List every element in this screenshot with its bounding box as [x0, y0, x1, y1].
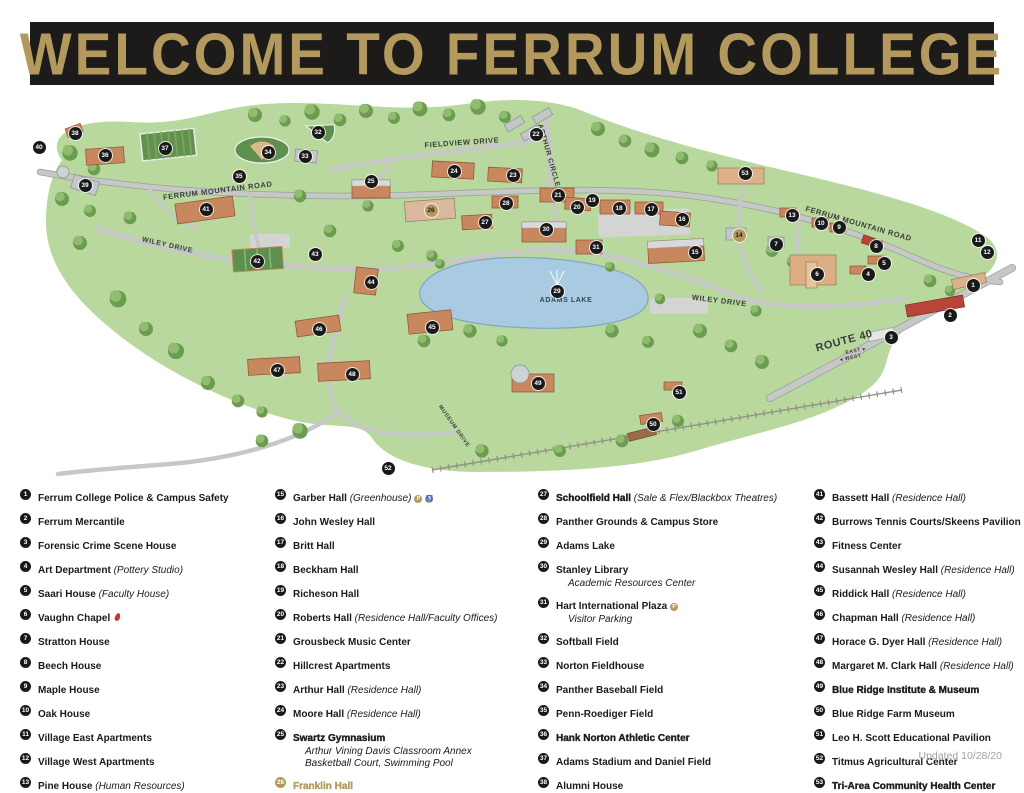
legend-name: Forensic Crime Scene House: [38, 541, 176, 552]
legend-detail: (Faculty House): [96, 589, 169, 600]
legend-detail: (Residence Hall): [889, 493, 966, 504]
legend-badge-48: 48: [814, 657, 825, 668]
legend-item-20: 20Roberts Hall (Residence Hall/Faculty O…: [275, 608, 537, 626]
legend-subline: Basketball Court, Swimming Pool: [293, 758, 472, 770]
legend-badge-9: 9: [20, 681, 31, 692]
legend-subline: Visitor Parking: [556, 614, 678, 626]
parking-icon: P: [670, 603, 678, 611]
legend-name: Art Department: [38, 565, 111, 576]
legend-detail: (Residence Hall): [938, 565, 1015, 576]
legend-item-32: 32Softball Field: [538, 632, 813, 650]
legend-name: Blue Ridge Farm Museum: [832, 709, 955, 720]
legend-name: Horace G. Dyer Hall: [832, 637, 925, 648]
legend-name: Beckham Hall: [293, 565, 359, 576]
legend-name: Maple House: [38, 685, 100, 696]
legend-name: Susannah Wesley Hall: [832, 565, 938, 576]
accessible-icon: ♿: [425, 495, 433, 503]
legend-name: Ferrum College Police & Campus Safety: [38, 493, 229, 504]
updated-date: Updated 10/28/20: [919, 750, 1003, 762]
legend-name: Bassett Hall: [832, 493, 889, 504]
parking-icon: P: [414, 495, 422, 503]
baseball-field: [235, 137, 289, 163]
legend-item-49: 49Blue Ridge Institute & Museum: [814, 680, 1024, 698]
legend-name: Hillcrest Apartments: [293, 661, 390, 672]
legend-column-4: 41Bassett Hall (Residence Hall)42Burrows…: [814, 488, 1024, 793]
legend-name: Chapman Hall: [832, 613, 899, 624]
legend-subline: Arthur Vining Davis Classroom Annex: [293, 746, 472, 758]
legend-badge-3: 3: [20, 537, 31, 548]
legend-item-19: 19Richeson Hall: [275, 584, 537, 602]
legend-item-33: 33Norton Fieldhouse: [538, 656, 813, 674]
legend-item-36: 36Hank Norton Athletic Center: [538, 728, 813, 746]
legend-item-4: 4Art Department (Pottery Studio): [20, 560, 270, 578]
legend-badge-47: 47: [814, 633, 825, 644]
legend-name: Arthur Hall: [293, 685, 345, 696]
legend-item-25: 25Swartz GymnasiumArthur Vining Davis Cl…: [275, 728, 537, 770]
legend-item-13: 13Pine House (Human Resources): [20, 776, 270, 793]
legend-badge-18: 18: [275, 561, 286, 572]
legend-name: Village East Apartments: [38, 733, 152, 744]
legend-item-3: 3Forensic Crime Scene House: [20, 536, 270, 554]
legend-badge-41: 41: [814, 489, 825, 500]
legend-name: Blue Ridge Institute & Museum: [832, 685, 979, 696]
legend-item-29: 29Adams Lake: [538, 536, 813, 554]
legend-badge-26: 26: [275, 777, 286, 788]
tennis-courts: [232, 247, 283, 272]
legend-badge-7: 7: [20, 633, 31, 644]
legend-badge-1: 1: [20, 489, 31, 500]
legend-name: Swartz Gymnasium: [293, 733, 385, 744]
legend-name: Hank Norton Athletic Center: [556, 733, 690, 744]
legend-badge-16: 16: [275, 513, 286, 524]
legend-badge-36: 36: [538, 729, 549, 740]
legend-subline: Academic Resources Center: [556, 578, 695, 590]
legend-name: Stanley Library: [556, 565, 628, 576]
legend-name: Leo H. Scott Educational Pavilion: [832, 733, 991, 744]
legend-item-30: 30Stanley LibraryAcademic Resources Cent…: [538, 560, 813, 590]
legend-item-1: 1Ferrum College Police & Campus Safety: [20, 488, 270, 506]
legend-badge-17: 17: [275, 537, 286, 548]
campus-map-page: { "banner": { "title": "WELCOME TO FERRU…: [0, 0, 1024, 793]
legend-item-48: 48Margaret M. Clark Hall (Residence Hall…: [814, 656, 1024, 674]
legend-item-8: 8Beech House: [20, 656, 270, 674]
legend-badge-52: 52: [814, 753, 825, 764]
legend-item-11: 11Village East Apartments: [20, 728, 270, 746]
legend-badge-42: 42: [814, 513, 825, 524]
legend-name: John Wesley Hall: [293, 517, 375, 528]
legend-item-5: 5Saari House (Faculty House): [20, 584, 270, 602]
legend-detail: (Sale & Flex/Blackbox Theatres): [631, 493, 777, 504]
legend-badge-50: 50: [814, 705, 825, 716]
legend-item-35: 35Penn-Roediger Field: [538, 704, 813, 722]
legend-name: Softball Field: [556, 637, 619, 648]
legend-badge-20: 20: [275, 609, 286, 620]
legend-badge-30: 30: [538, 561, 549, 572]
lake-label: ADAMS LAKE: [540, 297, 593, 304]
legend-name: Schoolfield Hall: [556, 493, 631, 504]
legend-detail: (Residence Hall): [925, 637, 1002, 648]
legend-badge-6: 6: [20, 609, 31, 620]
legend-badge-31: 31: [538, 597, 549, 608]
legend-badge-44: 44: [814, 561, 825, 572]
legend-detail: (Residence Hall): [937, 661, 1014, 672]
legend-badge-53: 53: [814, 777, 825, 788]
legend-name: Richeson Hall: [293, 589, 359, 600]
legend-item-50: 50Blue Ridge Farm Museum: [814, 704, 1024, 722]
legend-detail: (Residence Hall): [889, 589, 966, 600]
legend-item-7: 7Stratton House: [20, 632, 270, 650]
legend-badge-13: 13: [20, 777, 31, 788]
legend-badge-37: 37: [538, 753, 549, 764]
legend-item-16: 16John Wesley Hall: [275, 512, 537, 530]
legend-item-10: 10Oak House: [20, 704, 270, 722]
legend-badge-34: 34: [538, 681, 549, 692]
legend-badge-8: 8: [20, 657, 31, 668]
legend-name: Oak House: [38, 709, 90, 720]
legend-name: Moore Hall: [293, 709, 344, 720]
legend-name: Margaret M. Clark Hall: [832, 661, 937, 672]
legend-item-38: 38Alumni House: [538, 776, 813, 793]
legend-detail: (Residence Hall): [899, 613, 976, 624]
legend-item-24: 24Moore Hall (Residence Hall): [275, 704, 537, 722]
legend-badge-5: 5: [20, 585, 31, 596]
legend-badge-4: 4: [20, 561, 31, 572]
legend-name: Fitness Center: [832, 541, 901, 552]
legend-name: Adams Stadium and Daniel Field: [556, 757, 711, 768]
legend-item-47: 47Horace G. Dyer Hall (Residence Hall): [814, 632, 1024, 650]
legend-name: Penn-Roediger Field: [556, 709, 653, 720]
legend-badge-21: 21: [275, 633, 286, 644]
legend-detail: (Residence Hall): [345, 685, 422, 696]
legend-column-3: 27Schoolfield Hall (Sale & Flex/Blackbox…: [538, 488, 813, 793]
legend-badge-32: 32: [538, 633, 549, 644]
legend-badge-12: 12: [20, 753, 31, 764]
legend-name: Saari House: [38, 589, 96, 600]
legend-item-42: 42Burrows Tennis Courts/Skeens Pavilion: [814, 512, 1024, 530]
legend-badge-15: 15: [275, 489, 286, 500]
legend-detail: (Residence Hall/Faculty Offices): [352, 613, 498, 624]
legend-name: Panther Baseball Field: [556, 685, 663, 696]
legend-badge-45: 45: [814, 585, 825, 596]
legend-item-46: 46Chapman Hall (Residence Hall): [814, 608, 1024, 626]
legend-column-2: 15Garber Hall (Greenhouse)P♿16John Wesle…: [275, 488, 537, 793]
legend-badge-35: 35: [538, 705, 549, 716]
legend-detail: (Human Resources): [92, 781, 184, 792]
legend-item-9: 9Maple House: [20, 680, 270, 698]
legend-name: Stratton House: [38, 637, 110, 648]
legend-badge-43: 43: [814, 537, 825, 548]
legend-name: Garber Hall: [293, 493, 347, 504]
legend-name: Roberts Hall: [293, 613, 352, 624]
legend-item-23: 23Arthur Hall (Residence Hall): [275, 680, 537, 698]
legend-badge-28: 28: [538, 513, 549, 524]
legend-badge-51: 51: [814, 729, 825, 740]
legend-name: Riddick Hall: [832, 589, 889, 600]
legend-item-2: 2Ferrum Mercantile: [20, 512, 270, 530]
legend-name: Ferrum Mercantile: [38, 517, 125, 528]
legend-item-53: 53Tri-Area Community Health Center: [814, 776, 1024, 793]
legend-badge-2: 2: [20, 513, 31, 524]
legend-name: Tri-Area Community Health Center: [832, 781, 995, 792]
legend-item-44: 44Susannah Wesley Hall (Residence Hall): [814, 560, 1024, 578]
legend-badge-29: 29: [538, 537, 549, 548]
legend-name: Franklin Hall: [293, 781, 353, 792]
legend-badge-25: 25: [275, 729, 286, 740]
legend-badge-19: 19: [275, 585, 286, 596]
legend-item-28: 28Panther Grounds & Campus Store: [538, 512, 813, 530]
legend-name: Grousbeck Music Center: [293, 637, 411, 648]
legend-item-41: 41Bassett Hall (Residence Hall): [814, 488, 1024, 506]
legend-item-51: 51Leo H. Scott Educational Pavilion: [814, 728, 1024, 746]
legend-badge-24: 24: [275, 705, 286, 716]
legend-badge-49: 49: [814, 681, 825, 692]
legend-item-12: 12Village West Apartments: [20, 752, 270, 770]
legend-badge-33: 33: [538, 657, 549, 668]
chapel-mark-icon: [114, 613, 121, 622]
legend-detail: (Residence Hall): [344, 709, 421, 720]
legend-item-34: 34Panther Baseball Field: [538, 680, 813, 698]
legend-item-26: 26Franklin HallDining Hall/Panther Pizze…: [275, 776, 537, 793]
legend-name: Norton Fieldhouse: [556, 661, 644, 672]
legend-badge-10: 10: [20, 705, 31, 716]
legend-badge-22: 22: [275, 657, 286, 668]
legend-detail: (Greenhouse): [347, 493, 411, 504]
legend-item-21: 21Grousbeck Music Center: [275, 632, 537, 650]
legend-column-1: 1Ferrum College Police & Campus Safety2F…: [20, 488, 270, 793]
legend-badge-11: 11: [20, 729, 31, 740]
legend-badge-38: 38: [538, 777, 549, 788]
legend-item-6: 6Vaughn Chapel: [20, 608, 270, 626]
legend-item-22: 22Hillcrest Apartments: [275, 656, 537, 674]
legend-item-27: 27Schoolfield Hall (Sale & Flex/Blackbox…: [538, 488, 813, 506]
legend-item-17: 17Britt Hall: [275, 536, 537, 554]
football-field: [140, 128, 197, 160]
legend-badge-46: 46: [814, 609, 825, 620]
legend-item-31: 31Hart International PlazaPVisitor Parki…: [538, 596, 813, 626]
legend-item-37: 37Adams Stadium and Daniel Field: [538, 752, 813, 770]
legend-name: Alumni House: [556, 781, 623, 792]
legend-item-45: 45Riddick Hall (Residence Hall): [814, 584, 1024, 602]
legend-item-15: 15Garber Hall (Greenhouse)P♿: [275, 488, 537, 506]
legend-name: Britt Hall: [293, 541, 335, 552]
legend-item-18: 18Beckham Hall: [275, 560, 537, 578]
legend-badge-27: 27: [538, 489, 549, 500]
legend-badge-23: 23: [275, 681, 286, 692]
legend-name: Hart International Plaza: [556, 601, 667, 612]
legend-name: Adams Lake: [556, 541, 615, 552]
legend-item-43: 43Fitness Center: [814, 536, 1024, 554]
legend-name: Panther Grounds & Campus Store: [556, 517, 718, 528]
legend-name: Beech House: [38, 661, 101, 672]
legend-name: Pine House: [38, 781, 92, 792]
legend-name: Village West Apartments: [38, 757, 155, 768]
legend-name: Vaughn Chapel: [38, 613, 110, 624]
legend-name: Burrows Tennis Courts/Skeens Pavilion: [832, 517, 1021, 528]
legend-detail: (Pottery Studio): [111, 565, 183, 576]
